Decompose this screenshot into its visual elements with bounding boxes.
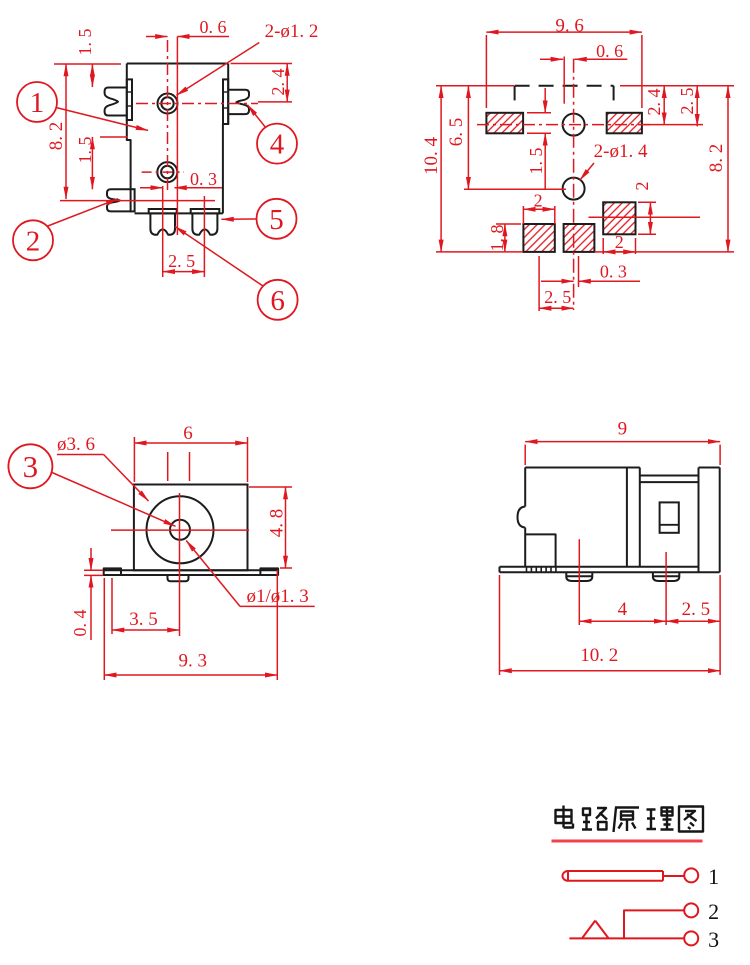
svg-text:4. 8: 4. 8: [267, 509, 288, 538]
svg-text:2: 2: [632, 182, 652, 191]
svg-text:0. 3: 0. 3: [600, 262, 627, 282]
svg-text:2. 5: 2. 5: [682, 599, 711, 620]
svg-text:2. 5: 2. 5: [677, 88, 697, 115]
svg-text:1. 8: 1. 8: [487, 225, 507, 252]
svg-text:0. 3: 0. 3: [190, 169, 217, 189]
svg-text:10. 2: 10. 2: [580, 645, 618, 666]
svg-text:0. 6: 0. 6: [200, 17, 227, 37]
svg-text:9: 9: [618, 419, 628, 440]
svg-text:4: 4: [270, 129, 285, 161]
svg-text:5: 5: [269, 204, 284, 236]
svg-text:8. 2: 8. 2: [46, 122, 67, 151]
svg-text:1. 5: 1. 5: [75, 29, 95, 56]
svg-text:2: 2: [708, 899, 719, 924]
svg-text:0. 6: 0. 6: [596, 41, 623, 61]
svg-text:10. 4: 10. 4: [421, 137, 442, 176]
svg-text:8. 2: 8. 2: [706, 144, 727, 173]
svg-text:1. 5: 1. 5: [526, 148, 546, 175]
svg-text:2. 4: 2. 4: [268, 69, 288, 96]
svg-text:9. 3: 9. 3: [178, 651, 207, 672]
svg-text:3: 3: [708, 927, 719, 952]
svg-text:9. 6: 9. 6: [555, 16, 584, 37]
svg-text:2-ø1. 2: 2-ø1. 2: [265, 21, 319, 42]
svg-text:3: 3: [23, 449, 39, 484]
svg-text:6: 6: [183, 423, 193, 444]
svg-text:2: 2: [26, 225, 41, 257]
svg-text:1: 1: [30, 87, 45, 119]
svg-text:0. 4: 0. 4: [70, 610, 90, 637]
svg-text:2: 2: [534, 191, 543, 211]
svg-text:2-ø1. 4: 2-ø1. 4: [594, 141, 648, 162]
svg-text:6: 6: [270, 285, 285, 317]
svg-text:4: 4: [618, 599, 628, 620]
svg-text:ø3. 6: ø3. 6: [57, 434, 95, 455]
svg-text:3. 5: 3. 5: [129, 609, 158, 630]
svg-text:1. 5: 1. 5: [75, 137, 95, 164]
svg-text:2. 4: 2. 4: [644, 89, 664, 116]
svg-text:6. 5: 6. 5: [446, 118, 467, 147]
svg-text:2. 5: 2. 5: [168, 251, 195, 271]
svg-text:2: 2: [615, 232, 624, 252]
svg-text:2. 5: 2. 5: [544, 287, 571, 307]
svg-text:1: 1: [708, 864, 719, 889]
